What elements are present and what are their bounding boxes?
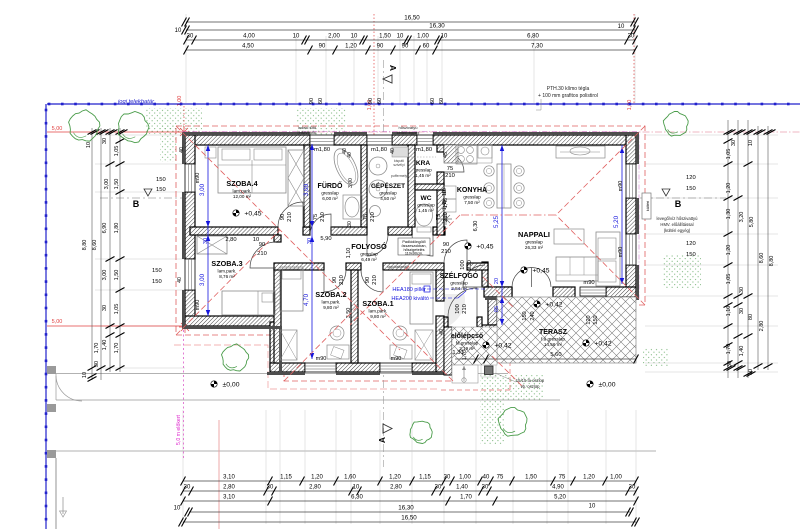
svg-text:3,00: 3,00 — [348, 178, 354, 188]
svg-text:HEA200 kiváltó: HEA200 kiváltó — [391, 296, 429, 302]
svg-text:m90: m90 — [583, 280, 594, 286]
svg-text:fá.gresslap: fá.gresslap — [456, 341, 479, 346]
svg-text:B: B — [133, 199, 140, 209]
svg-text:10: 10 — [589, 504, 596, 510]
svg-text:210: 210 — [339, 275, 345, 285]
svg-text:1,20: 1,20 — [389, 475, 401, 481]
svg-text:6,80: 6,80 — [527, 34, 539, 40]
svg-text:10: 10 — [618, 24, 625, 30]
svg-text:keltéri egyég: keltéri egyég — [397, 130, 420, 135]
svg-text:210: 210 — [320, 212, 326, 222]
svg-text:1,40: 1,40 — [456, 485, 468, 491]
svg-text:1,05: 1,05 — [114, 146, 120, 157]
svg-text:1,60: 1,60 — [344, 475, 356, 481]
svg-text:10: 10 — [86, 142, 92, 148]
svg-text:90: 90 — [319, 44, 326, 50]
svg-text:10: 10 — [748, 140, 754, 146]
svg-text:75: 75 — [313, 214, 319, 220]
svg-text:75: 75 — [447, 166, 453, 172]
svg-text:2,80: 2,80 — [223, 485, 235, 491]
svg-text:90: 90 — [365, 277, 371, 283]
svg-text:90: 90 — [377, 44, 384, 50]
svg-text:16,50: 16,50 — [404, 15, 420, 22]
svg-text:120: 120 — [686, 241, 696, 247]
svg-text:lam.park.: lam.park. — [233, 189, 252, 194]
svg-text:A: A — [377, 437, 387, 443]
svg-text:kültéri: kültéri — [646, 201, 650, 211]
svg-text:90: 90 — [309, 98, 315, 104]
svg-text:210: 210 — [370, 212, 376, 222]
svg-text:4,70: 4,70 — [303, 293, 310, 306]
svg-text:30: 30 — [739, 287, 745, 293]
svg-text:1,10: 1,10 — [726, 306, 732, 317]
svg-text:3,10: 3,10 — [223, 475, 235, 481]
svg-text:B: B — [675, 199, 682, 209]
svg-text:+0,45: +0,45 — [476, 243, 493, 250]
svg-text:16,50: 16,50 — [401, 515, 417, 522]
svg-text:9,80 m²: 9,80 m² — [323, 305, 339, 310]
svg-text:SZOBA.1: SZOBA.1 — [362, 299, 393, 308]
svg-text:TERASZ: TERASZ — [539, 329, 568, 336]
svg-text:30: 30 — [347, 221, 353, 227]
svg-text:5,20: 5,20 — [613, 215, 620, 228]
svg-text:1,80: 1,80 — [114, 223, 120, 234]
svg-text:80: 80 — [748, 314, 754, 320]
svg-text:150: 150 — [593, 315, 599, 324]
svg-text:tágulásitartály: tágulásitartály — [387, 265, 409, 269]
svg-text:A: A — [388, 65, 398, 71]
svg-text:14,56 m²: 14,56 m² — [544, 342, 563, 347]
svg-text:60: 60 — [439, 98, 445, 104]
svg-text:1,45 m²: 1,45 m² — [418, 208, 434, 213]
svg-text:4,00: 4,00 — [243, 34, 255, 40]
svg-text:26,33 m²: 26,33 m² — [525, 245, 544, 250]
svg-text:1,50: 1,50 — [114, 179, 120, 190]
svg-text:SZOBA.3: SZOBA.3 — [211, 259, 242, 268]
svg-text:1,70: 1,70 — [462, 350, 468, 360]
svg-text:+0,45: +0,45 — [244, 210, 261, 217]
svg-text:5,00: 5,00 — [52, 319, 63, 325]
svg-text:30: 30 — [307, 238, 313, 244]
svg-text:30: 30 — [629, 485, 636, 491]
svg-text:gresslap: gresslap — [321, 191, 339, 196]
svg-text:1,50: 1,50 — [114, 270, 120, 281]
svg-text:110x90cm.: 110x90cm. — [405, 252, 423, 256]
svg-text:2,80: 2,80 — [225, 237, 236, 243]
svg-text:10: 10 — [442, 188, 448, 194]
svg-text:1,20: 1,20 — [726, 183, 732, 194]
svg-text:10: 10 — [397, 34, 404, 40]
svg-text:1,15: 1,15 — [280, 475, 292, 481]
svg-text:f.á gresslap: f.á gresslap — [541, 337, 565, 342]
svg-text:40: 40 — [177, 277, 183, 283]
svg-text:NAPPALI: NAPPALI — [518, 230, 550, 239]
svg-text:1,20: 1,20 — [345, 44, 357, 50]
svg-text:40: 40 — [439, 329, 445, 335]
svg-text:1,20: 1,20 — [726, 245, 732, 256]
svg-text:30: 30 — [102, 305, 108, 311]
svg-text:3,10: 3,10 — [223, 495, 235, 501]
svg-text:gresslap: gresslap — [450, 281, 468, 286]
svg-text:12,00 m²: 12,00 m² — [233, 194, 252, 199]
svg-text:gresslap: gresslap — [463, 195, 481, 200]
svg-text:+0,42: +0,42 — [494, 342, 511, 349]
svg-text:+ 100 mm grafitos polistirol: + 100 mm grafitos polistirol — [538, 93, 598, 99]
svg-text:150: 150 — [686, 252, 696, 258]
svg-text:8,76 m²: 8,76 m² — [219, 274, 235, 279]
svg-text:210: 210 — [287, 212, 293, 222]
svg-text:150: 150 — [522, 311, 528, 320]
svg-text:150: 150 — [156, 187, 166, 193]
svg-text:6,30: 6,30 — [473, 221, 479, 232]
svg-text:±0,00: ±0,00 — [599, 381, 616, 388]
svg-text:90: 90 — [280, 214, 286, 220]
svg-text:1,30: 1,30 — [726, 209, 732, 220]
svg-text:3,00: 3,00 — [303, 183, 310, 196]
svg-text:210: 210 — [372, 275, 378, 285]
svg-text:1,50: 1,50 — [525, 475, 537, 481]
svg-text:jogi telekhatár: jogi telekhatár — [117, 99, 155, 105]
svg-text:10: 10 — [253, 237, 259, 243]
svg-text:210: 210 — [443, 212, 449, 222]
svg-text:3,00: 3,00 — [104, 179, 110, 190]
svg-text:±0,00: ±0,00 — [223, 381, 240, 388]
svg-text:5,60: 5,60 — [550, 352, 561, 358]
svg-text:150: 150 — [152, 268, 162, 274]
svg-text:40: 40 — [390, 148, 396, 154]
svg-text:150: 150 — [156, 177, 166, 183]
svg-text:4,50: 4,50 — [242, 44, 254, 50]
svg-text:1,50: 1,50 — [379, 34, 391, 40]
svg-text:6,49 m²: 6,49 m² — [361, 257, 377, 262]
svg-text:2,84 m²: 2,84 m² — [451, 286, 467, 291]
svg-text:240: 240 — [530, 311, 536, 320]
svg-text:gresslap: gresslap — [525, 240, 543, 245]
svg-text:lam.park.: lam.park. — [218, 269, 237, 274]
svg-text:3,20: 3,20 — [739, 212, 745, 223]
svg-text:5,25: 5,25 — [493, 215, 500, 228]
svg-text:1,70: 1,70 — [114, 343, 120, 354]
svg-text:30: 30 — [102, 138, 108, 144]
svg-text:1,00: 1,00 — [417, 34, 429, 40]
svg-text:40: 40 — [179, 147, 185, 153]
svg-text:GÉPÉSZET: GÉPÉSZET — [371, 181, 405, 190]
svg-text:puffermely: puffermely — [391, 174, 408, 178]
svg-text:előlépcső: előlépcső — [451, 333, 483, 340]
svg-text:75: 75 — [436, 214, 442, 220]
svg-text:KRA: KRA — [416, 160, 431, 167]
svg-text:120: 120 — [586, 315, 592, 324]
svg-text:m90: m90 — [618, 247, 624, 258]
svg-text:FOLYOSÓ: FOLYOSÓ — [351, 242, 387, 251]
svg-text:1,45 m²: 1,45 m² — [415, 173, 431, 178]
svg-text:90: 90 — [368, 98, 374, 104]
svg-text:40: 40 — [483, 475, 490, 481]
svg-text:(HMV) téki: (HMV) téki — [298, 130, 317, 135]
svg-text:120: 120 — [686, 175, 696, 181]
svg-text:lam.park.: lam.park. — [322, 300, 341, 305]
svg-text:1,70: 1,70 — [94, 343, 100, 354]
svg-text:20: 20 — [494, 278, 500, 284]
svg-text:10: 10 — [748, 369, 754, 375]
svg-text:60: 60 — [377, 98, 383, 104]
svg-text:SZOBA.4: SZOBA.4 — [226, 179, 257, 188]
svg-text:30: 30 — [94, 361, 100, 367]
svg-text:3,00: 3,00 — [199, 183, 206, 196]
svg-text:210: 210 — [441, 249, 451, 255]
svg-text:2,80: 2,80 — [759, 321, 765, 332]
svg-text:30: 30 — [482, 485, 489, 491]
svg-text:m1,80: m1,80 — [314, 147, 330, 153]
svg-text:5,0 m előkert: 5,0 m előkert — [176, 414, 182, 445]
svg-text:10: 10 — [351, 34, 358, 40]
svg-text:2,80: 2,80 — [309, 485, 321, 491]
svg-text:30: 30 — [435, 485, 442, 491]
svg-text:4,50 m²: 4,50 m² — [380, 196, 396, 201]
svg-text:30: 30 — [267, 485, 274, 491]
svg-text:5,20: 5,20 — [554, 495, 566, 501]
svg-text:9,80 m²: 9,80 m² — [370, 314, 386, 319]
svg-text:7,50 m²: 7,50 m² — [464, 200, 480, 205]
svg-text:levegő/víz hőszivattyú: levegő/víz hőszivattyú — [657, 216, 699, 221]
svg-text:8,60: 8,60 — [759, 253, 765, 264]
svg-text:30: 30 — [444, 475, 451, 481]
svg-text:+0,42: +0,42 — [545, 301, 562, 308]
svg-text:30: 30 — [184, 485, 191, 491]
svg-text:10: 10 — [174, 506, 181, 512]
svg-text:75: 75 — [497, 475, 504, 481]
svg-text:lam.park.: lam.park. — [369, 309, 388, 314]
svg-text:5,80: 5,80 — [749, 217, 755, 228]
svg-text:150: 150 — [686, 186, 696, 192]
svg-text:+0,45: +0,45 — [532, 267, 549, 274]
svg-text:1,00: 1,00 — [459, 475, 471, 481]
svg-text:75: 75 — [559, 475, 566, 481]
svg-text:7,30: 7,30 — [531, 44, 543, 50]
svg-text:gresslap: gresslap — [379, 191, 397, 196]
svg-text:30: 30 — [628, 34, 635, 40]
svg-text:8,80: 8,80 — [82, 240, 88, 251]
svg-text:1,40: 1,40 — [739, 346, 745, 357]
svg-text:1,20: 1,20 — [583, 475, 595, 481]
svg-text:1,00: 1,00 — [610, 475, 622, 481]
svg-text:100: 100 — [455, 304, 461, 314]
svg-text:210: 210 — [467, 260, 473, 270]
svg-text:1,40: 1,40 — [102, 340, 108, 351]
svg-text:90: 90 — [332, 277, 338, 283]
svg-text:gresslap: gresslap — [360, 252, 378, 257]
svg-text:3,00: 3,00 — [199, 273, 206, 286]
svg-text:2,80: 2,80 — [390, 485, 402, 491]
svg-text:gresslap: gresslap — [417, 203, 435, 208]
svg-text:1,15: 1,15 — [419, 475, 431, 481]
svg-text:2,00: 2,00 — [328, 34, 340, 40]
svg-text:30: 30 — [739, 308, 745, 314]
svg-text:60: 60 — [318, 98, 324, 104]
svg-text:3,00: 3,00 — [102, 270, 108, 281]
svg-text:10: 10 — [175, 28, 182, 34]
svg-text:10: 10 — [293, 34, 300, 40]
svg-text:30: 30 — [187, 34, 194, 40]
svg-text:210: 210 — [462, 304, 468, 314]
svg-text:40: 40 — [342, 148, 348, 154]
svg-text:8,60: 8,60 — [92, 240, 98, 251]
svg-text:2,19 m²: 2,19 m² — [459, 346, 475, 351]
svg-text:m90: m90 — [391, 356, 402, 362]
svg-text:30: 30 — [727, 361, 733, 367]
svg-text:1,05: 1,05 — [726, 274, 732, 285]
svg-text:60: 60 — [423, 44, 430, 50]
svg-text:5,90: 5,90 — [320, 236, 331, 242]
svg-text:1,05: 1,05 — [114, 304, 120, 315]
svg-text:1,70: 1,70 — [726, 344, 732, 355]
svg-text:45: 45 — [443, 152, 449, 158]
svg-text:30: 30 — [731, 140, 737, 146]
svg-text:m90: m90 — [195, 300, 201, 311]
svg-text:PTH.30 klímo tégla: PTH.30 klímo tégla — [547, 86, 590, 92]
svg-text:8,80: 8,80 — [769, 256, 775, 267]
svg-text:(kültéri egyég): (kültéri egyég) — [664, 228, 691, 233]
svg-text:4,90: 4,90 — [552, 485, 564, 491]
svg-text:szivélyi: szivélyi — [393, 163, 405, 167]
svg-text:6,00 m²: 6,00 m² — [322, 196, 338, 201]
svg-text:210: 210 — [445, 173, 455, 179]
svg-text:m90: m90 — [195, 173, 201, 184]
svg-text:6,90: 6,90 — [102, 223, 108, 234]
svg-text:gresslap: gresslap — [414, 168, 432, 173]
svg-text:16,30: 16,30 — [398, 505, 414, 512]
svg-text:5,00: 5,00 — [52, 126, 63, 132]
svg-text:60: 60 — [430, 98, 436, 104]
svg-text:90: 90 — [259, 242, 265, 248]
svg-text:10: 10 — [441, 34, 448, 40]
svg-text:90: 90 — [443, 242, 449, 248]
svg-text:FÜRDŐ: FÜRDŐ — [318, 181, 343, 190]
svg-text:150: 150 — [152, 279, 162, 285]
svg-text:75: 75 — [363, 214, 369, 220]
svg-text:10: 10 — [82, 372, 88, 378]
svg-text:10: 10 — [353, 485, 360, 491]
svg-text:1,20: 1,20 — [311, 475, 323, 481]
svg-text:WC: WC — [421, 195, 432, 202]
svg-text:30: 30 — [203, 238, 209, 244]
svg-text:1,05: 1,05 — [726, 149, 732, 160]
svg-text:HEA180 pillér: HEA180 pillér — [392, 287, 426, 293]
svg-text:15/15 fa oszlop: 15/15 fa oszlop — [516, 378, 545, 383]
svg-text:+0,42: +0,42 — [594, 340, 611, 347]
svg-text:KONYHA: KONYHA — [457, 187, 487, 194]
svg-text:1,70: 1,70 — [460, 495, 472, 501]
svg-text:1,45: 1,45 — [443, 198, 449, 208]
svg-text:90: 90 — [402, 44, 409, 50]
svg-text:m90: m90 — [618, 181, 624, 192]
svg-text:HMV. előállítással: HMV. előállítással — [660, 222, 693, 227]
svg-text:6,30: 6,30 — [351, 495, 363, 501]
svg-text:SZOBA.2: SZOBA.2 — [315, 290, 346, 299]
svg-text:85: 85 — [494, 306, 500, 312]
svg-text:16,30: 16,30 — [429, 23, 445, 30]
svg-text:100: 100 — [460, 260, 466, 270]
svg-text:m1,80: m1,80 — [371, 147, 387, 153]
svg-text:vb. oszlop: vb. oszlop — [521, 384, 541, 389]
svg-text:SZÉLFOGÓ: SZÉLFOGÓ — [440, 271, 479, 280]
svg-text:m1,80: m1,80 — [416, 147, 432, 153]
svg-text:m90: m90 — [316, 356, 327, 362]
